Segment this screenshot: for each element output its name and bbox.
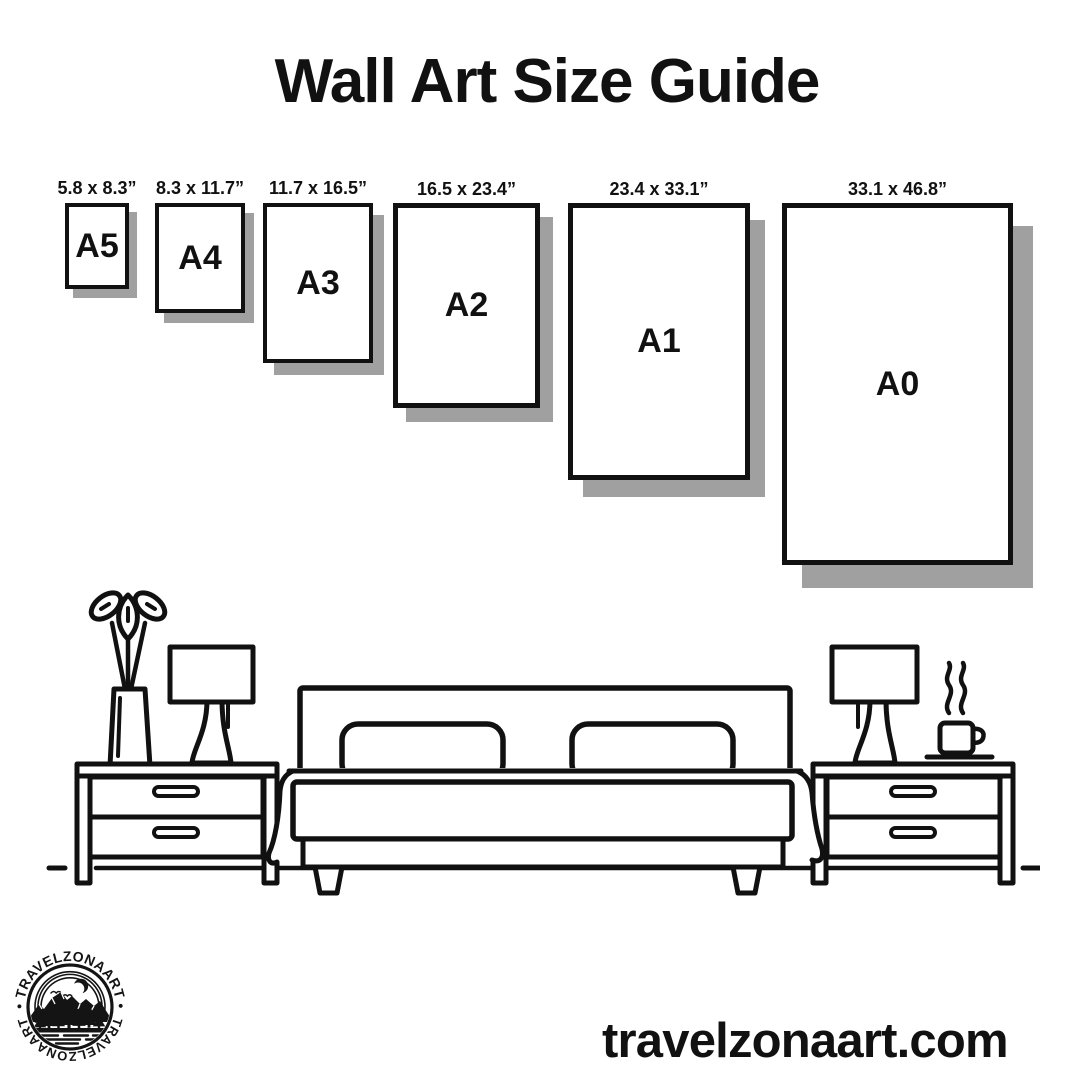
paper-size-a3: 11.7 x 16.5” A3	[263, 203, 373, 363]
paper-size-a5: 5.8 x 8.3” A5	[65, 203, 129, 289]
table-lamp-left-icon	[170, 647, 253, 763]
paper-dimensions-label: 11.7 x 16.5”	[269, 178, 367, 199]
bed-base	[303, 839, 783, 867]
paper-size-label: A0	[876, 365, 919, 404]
nightstand-right-icon	[813, 764, 1013, 883]
paper-size-a0: 33.1 x 46.8” A0	[782, 203, 1013, 565]
paper-dimensions-label: 5.8 x 8.3”	[57, 178, 136, 199]
bed-leg-right	[733, 867, 760, 893]
paper-size-a1: 23.4 x 33.1” A1	[568, 203, 750, 480]
coffee-cup-icon	[927, 663, 992, 757]
paper-size-label: A3	[296, 264, 339, 303]
website-url: travelzonaart.com	[602, 1013, 1008, 1069]
paper-size-label: A2	[445, 286, 488, 325]
paper-size-label: A1	[637, 322, 680, 361]
table-lamp-right-icon	[832, 647, 917, 763]
paper-size-label: A5	[75, 227, 118, 266]
paper-size-label: A4	[178, 239, 221, 278]
bed-icon	[268, 688, 822, 893]
paper-size-a2: 16.5 x 23.4” A2	[393, 203, 540, 408]
paper-size-a4: 8.3 x 11.7” A4	[155, 203, 245, 313]
brand-logo: • TRAVELZONAART • TRAVELZONAART	[8, 945, 132, 1069]
nightstand-left-icon	[77, 764, 277, 883]
wall-art-size-guide-infographic: Wall Art Size Guide 5.8 x 8.3” A5 8.3 x …	[0, 0, 1080, 1080]
bedroom-scene-illustration	[40, 585, 1040, 900]
page-title: Wall Art Size Guide	[0, 46, 1080, 117]
duvet	[293, 782, 792, 839]
paper-dimensions-label: 33.1 x 46.8”	[848, 179, 947, 200]
vase-plant-icon	[86, 588, 169, 766]
bed-leg-left	[315, 867, 342, 893]
paper-dimensions-label: 23.4 x 33.1”	[609, 179, 708, 200]
paper-dimensions-label: 8.3 x 11.7”	[156, 178, 244, 199]
paper-dimensions-label: 16.5 x 23.4”	[417, 179, 516, 200]
